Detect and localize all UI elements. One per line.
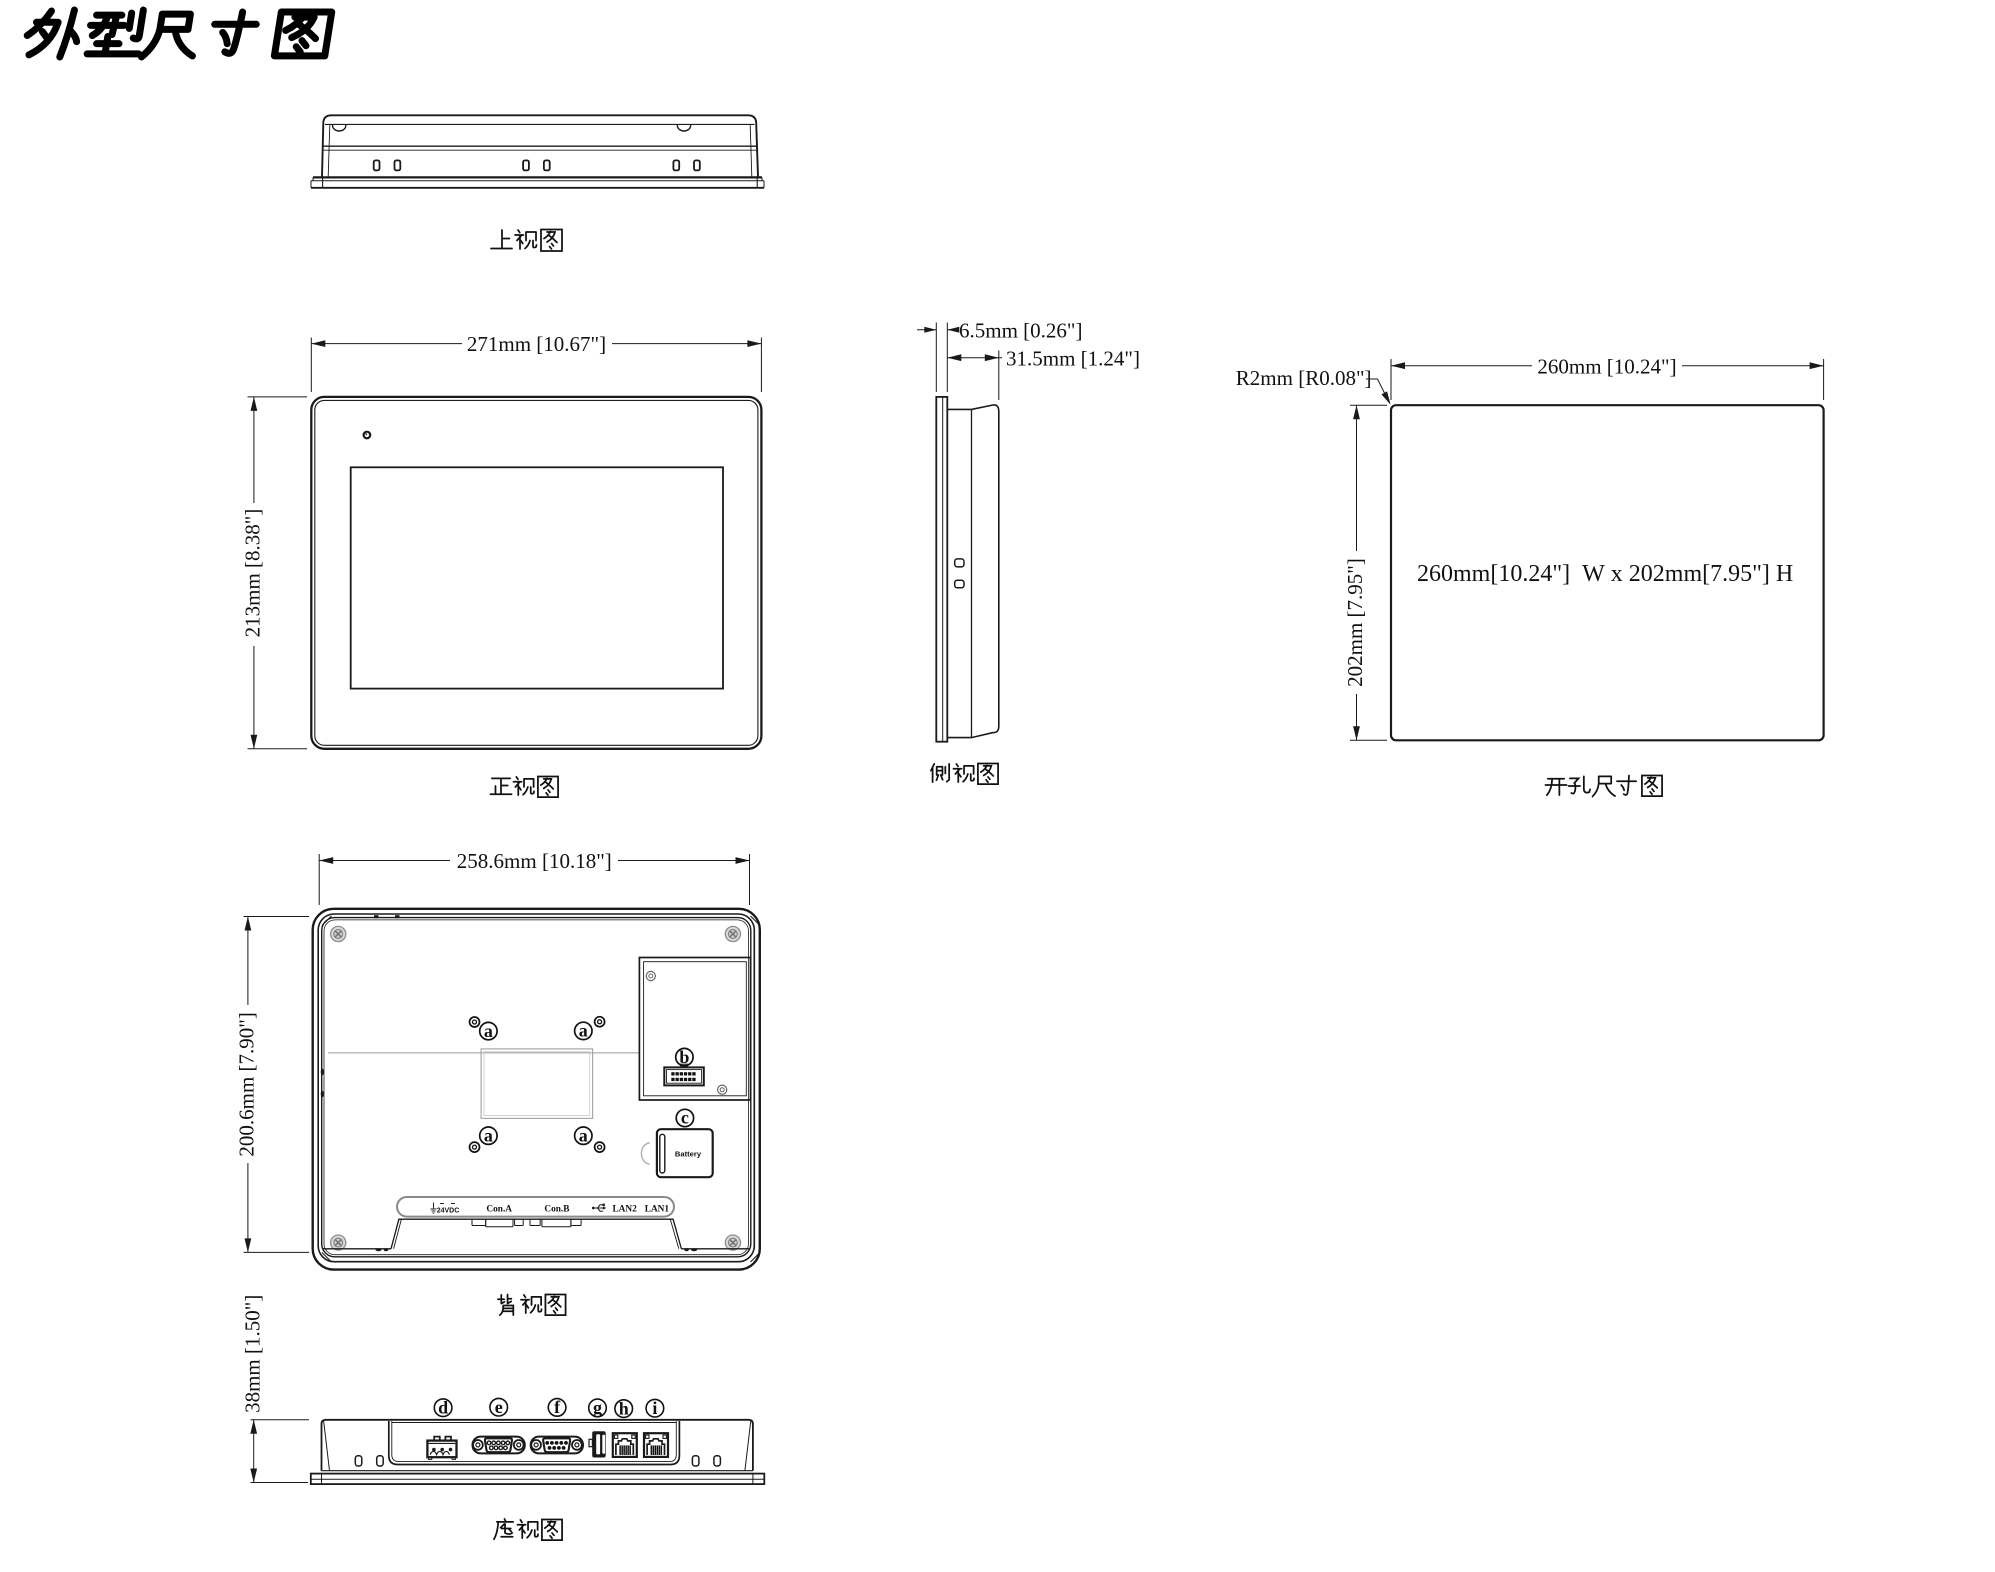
svg-text:Battery: Battery bbox=[675, 1150, 702, 1159]
svg-text:a: a bbox=[579, 1125, 588, 1145]
svg-text:h: h bbox=[619, 1398, 629, 1418]
svg-text:271mm [10.67"]: 271mm [10.67"] bbox=[467, 332, 606, 356]
svg-text:260mm [10.24"]: 260mm [10.24"] bbox=[1537, 354, 1676, 378]
svg-text:260mm[10.24"] W x 202mm[7.95": 260mm[10.24"] W x 202mm[7.95"] H bbox=[1417, 561, 1793, 587]
svg-text:g: g bbox=[593, 1398, 602, 1418]
svg-text:Con.A: Con.A bbox=[486, 1205, 512, 1215]
svg-text:24VDC: 24VDC bbox=[437, 1208, 460, 1215]
svg-text:LAN2: LAN2 bbox=[612, 1205, 637, 1215]
svg-text:213mm [8.38"]: 213mm [8.38"] bbox=[241, 509, 265, 638]
svg-text:d: d bbox=[438, 1397, 448, 1417]
svg-text:a: a bbox=[579, 1021, 588, 1041]
svg-text:c: c bbox=[681, 1108, 689, 1128]
svg-text:200.6mm [7.90"]: 200.6mm [7.90"] bbox=[235, 1012, 259, 1156]
svg-text:a: a bbox=[484, 1021, 493, 1041]
svg-text:38mm [1.50"]: 38mm [1.50"] bbox=[240, 1295, 264, 1413]
svg-text:202mm [7.95"]: 202mm [7.95"] bbox=[1343, 558, 1367, 687]
svg-text:e: e bbox=[495, 1397, 503, 1417]
svg-text:6.5mm [0.26"]: 6.5mm [0.26"] bbox=[959, 318, 1082, 342]
svg-text:i: i bbox=[652, 1398, 657, 1418]
svg-text:Con.B: Con.B bbox=[544, 1205, 569, 1215]
svg-text:a: a bbox=[484, 1125, 493, 1145]
svg-text:LAN1: LAN1 bbox=[645, 1205, 670, 1215]
svg-text:258.6mm [10.18"]: 258.6mm [10.18"] bbox=[457, 849, 612, 873]
svg-text:R2mm [R0.08"]: R2mm [R0.08"] bbox=[1236, 366, 1372, 390]
svg-text:f: f bbox=[554, 1397, 561, 1417]
svg-text:31.5mm [1.24"]: 31.5mm [1.24"] bbox=[1006, 346, 1140, 370]
